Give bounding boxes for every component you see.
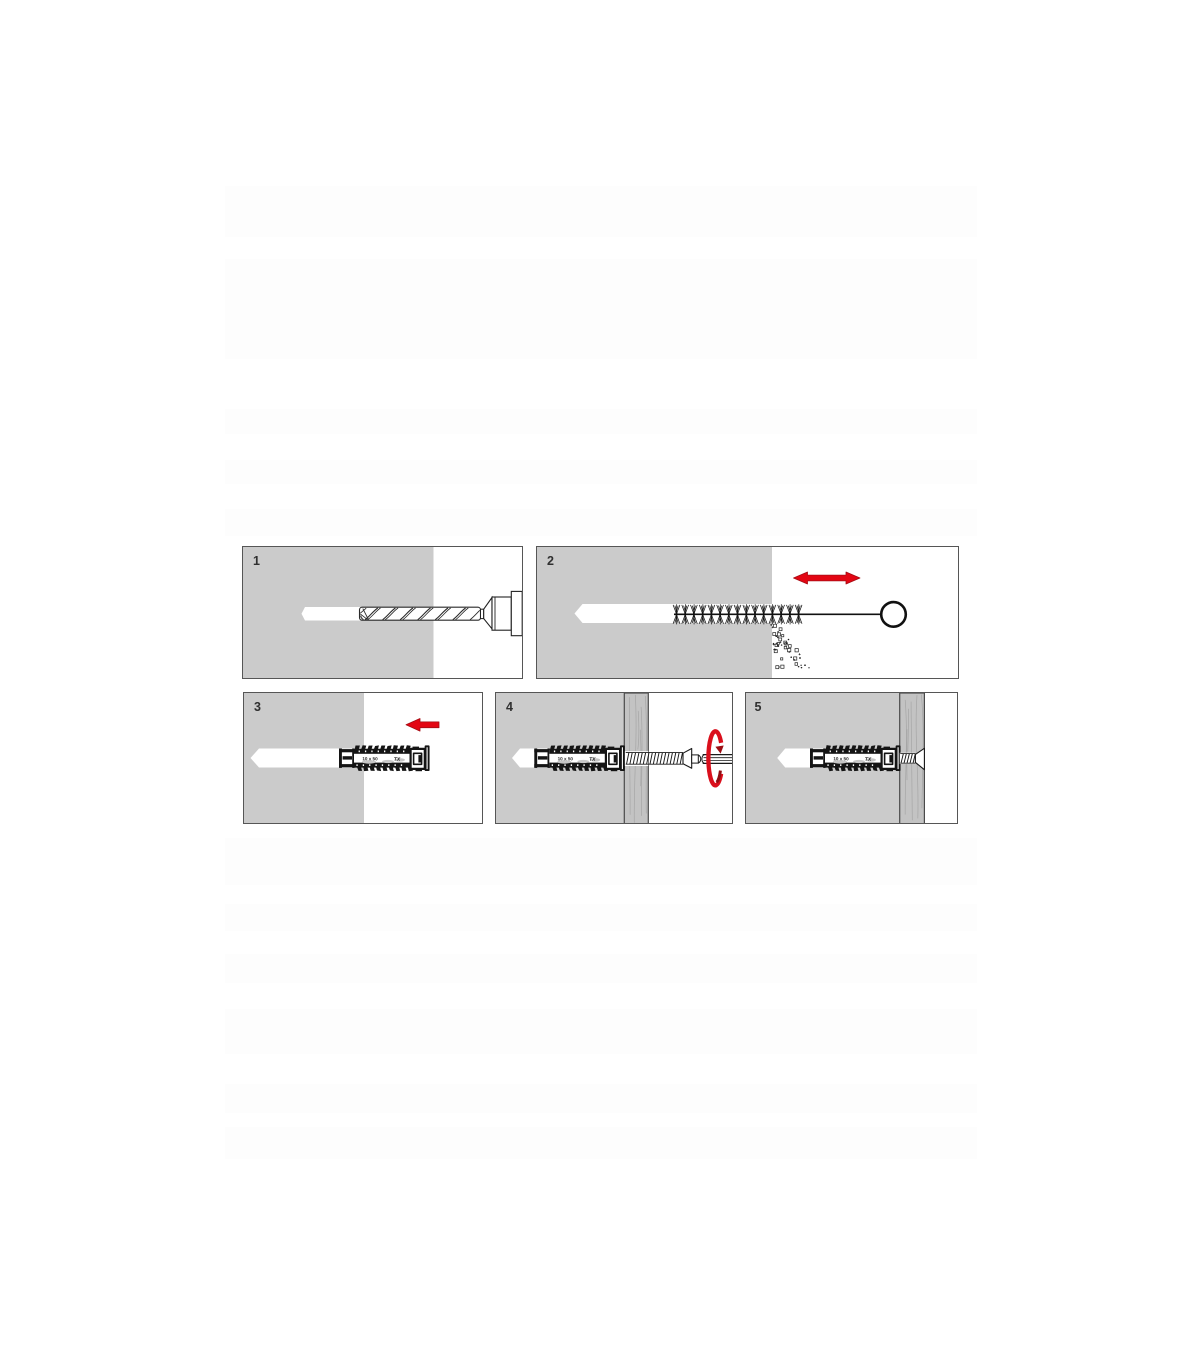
svg-text:10 x 50: 10 x 50 xyxy=(558,756,574,761)
svg-text:TX: TX xyxy=(865,757,872,763)
svg-text:10 x 50: 10 x 50 xyxy=(833,756,849,761)
svg-text:10 x 50: 10 x 50 xyxy=(362,756,378,761)
svg-text:TX: TX xyxy=(589,757,596,763)
svg-text:TX: TX xyxy=(394,757,401,763)
